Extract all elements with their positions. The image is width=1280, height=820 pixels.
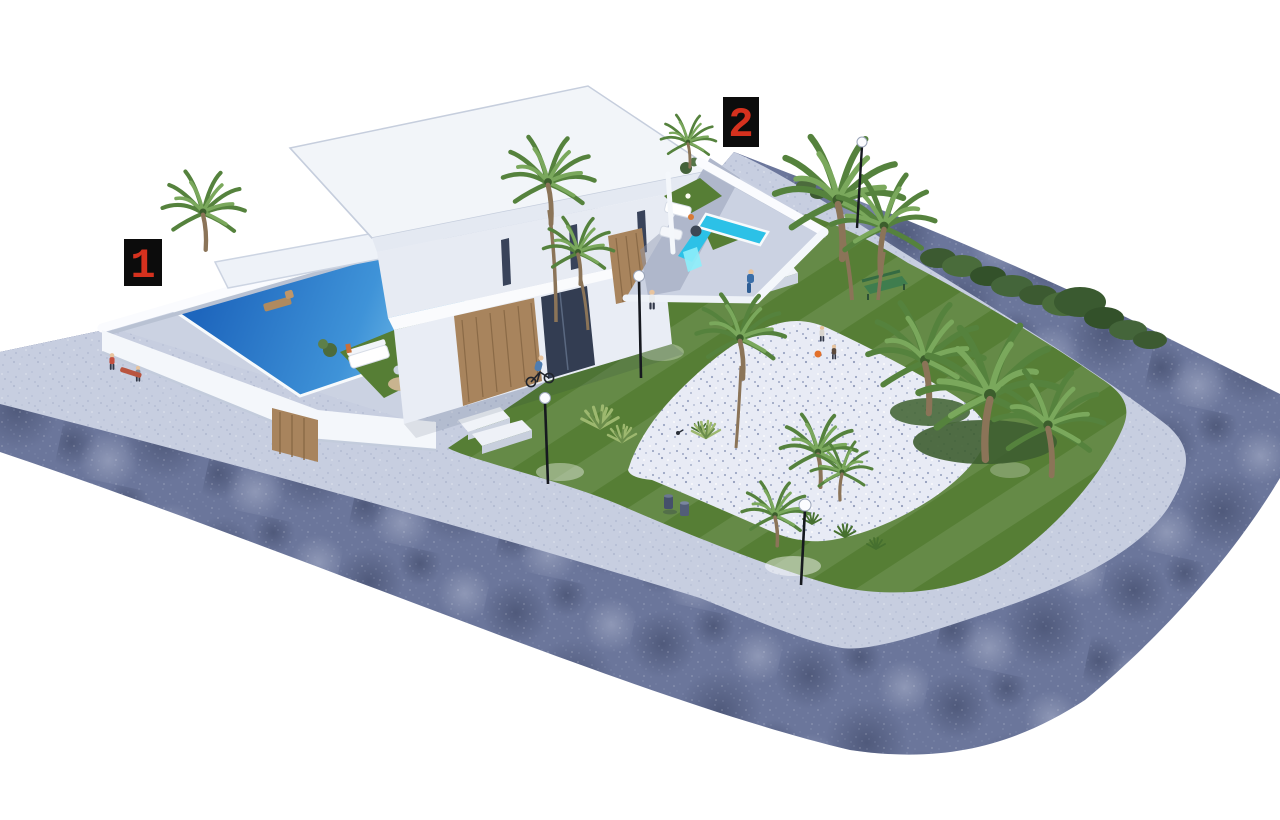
plot-2-marker-label: 2 [728, 101, 753, 149]
patio-light [685, 193, 690, 198]
render-canvas: 1 2 [0, 0, 1280, 820]
plot-1-marker-label: 1 [130, 242, 155, 290]
aerial-render: 1 2 [0, 0, 1280, 820]
plot-1-marker: 1 [124, 239, 162, 290]
plot-2-marker: 2 [723, 97, 759, 149]
ball [815, 351, 822, 358]
